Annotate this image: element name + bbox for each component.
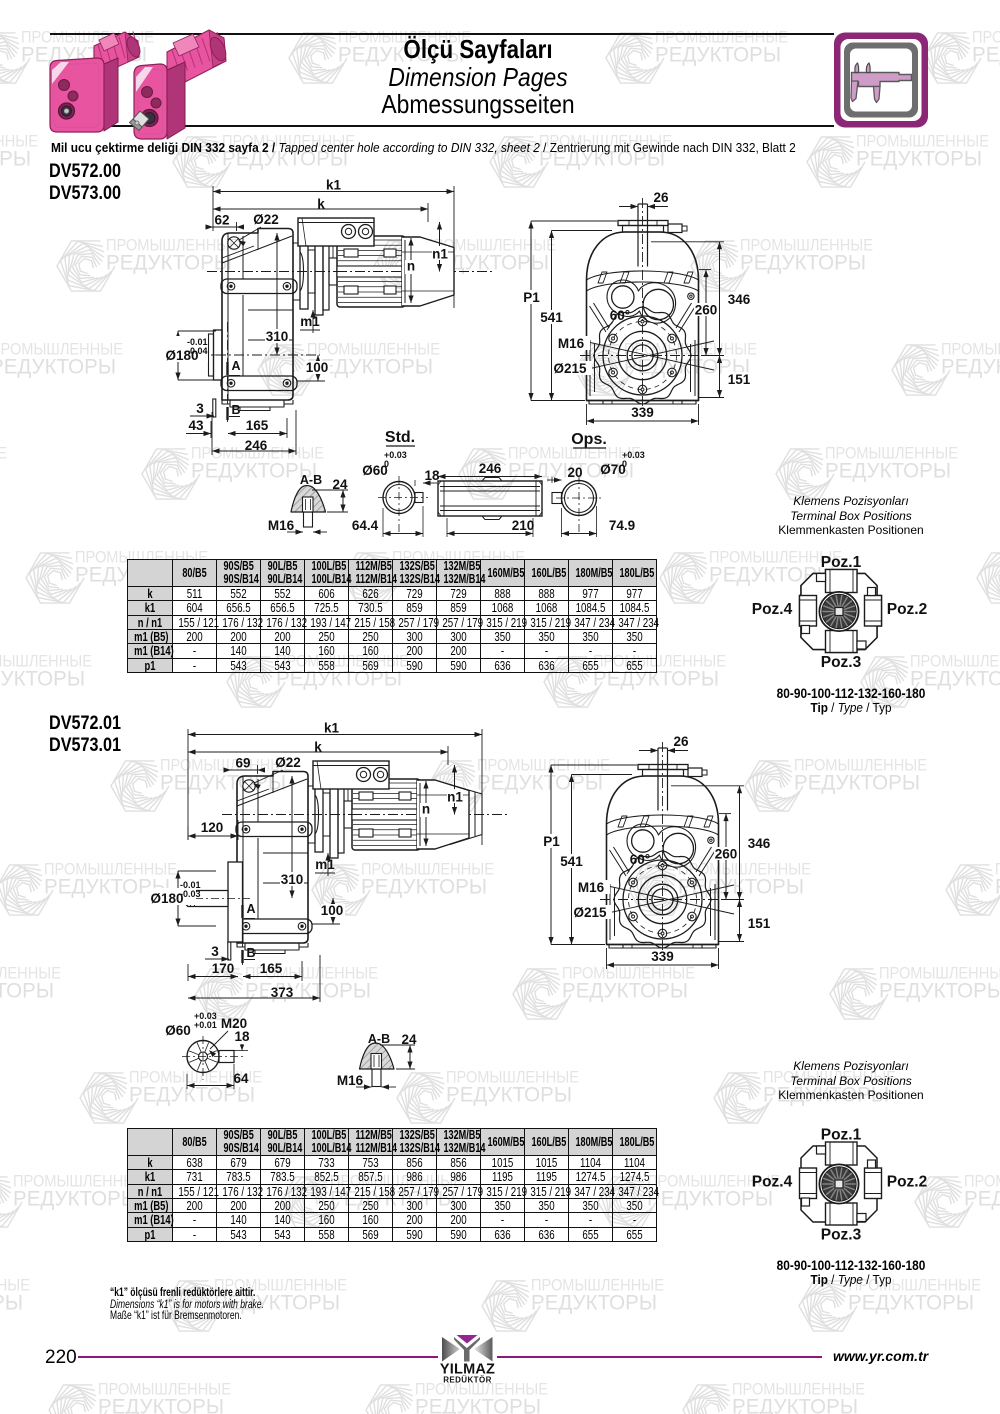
svg-text:Std.: Std. (385, 429, 415, 446)
svg-text:310: 310 (281, 872, 304, 887)
svg-text:151: 151 (748, 916, 771, 931)
svg-text:Poz.1: Poz.1 (821, 1127, 862, 1144)
svg-text:Ø215: Ø215 (573, 905, 607, 920)
svg-text:60°: 60° (630, 852, 650, 867)
svg-text:M16: M16 (268, 518, 295, 533)
svg-text:346: 346 (748, 836, 771, 851)
svg-text:P1: P1 (523, 290, 540, 305)
svg-text:3: 3 (196, 401, 204, 416)
svg-text:3: 3 (211, 944, 219, 959)
svg-text:B: B (231, 403, 240, 417)
svg-text:Poz.1: Poz.1 (821, 554, 862, 571)
svg-text:A: A (246, 902, 255, 916)
svg-text:k1: k1 (326, 178, 342, 193)
svg-text:100: 100 (321, 903, 344, 918)
svg-text:373: 373 (271, 985, 294, 1000)
svg-text:Ø180: Ø180 (150, 891, 183, 906)
svg-text:151: 151 (728, 372, 751, 387)
svg-text:20: 20 (567, 465, 582, 480)
svg-text:+0.01: +0.01 (194, 1020, 217, 1030)
svg-text:165: 165 (260, 961, 283, 976)
svg-text:246: 246 (245, 438, 268, 453)
svg-text:B: B (246, 946, 255, 960)
svg-text:Ops.: Ops. (571, 431, 607, 448)
svg-text:260: 260 (715, 847, 738, 862)
svg-text:541: 541 (560, 854, 583, 869)
svg-text:Poz.4: Poz.4 (752, 601, 793, 618)
svg-text:Poz.2: Poz.2 (887, 1174, 927, 1191)
svg-text:Poz.3: Poz.3 (821, 1227, 862, 1244)
svg-text:k1: k1 (324, 721, 340, 736)
svg-text:m1: m1 (315, 857, 335, 872)
svg-text:339: 339 (631, 405, 654, 420)
svg-text:64.4: 64.4 (352, 518, 379, 533)
svg-text:Ø22: Ø22 (253, 212, 279, 227)
svg-text:Poz.2: Poz.2 (887, 601, 927, 618)
svg-text:62: 62 (214, 213, 229, 228)
svg-text:69: 69 (235, 756, 250, 771)
svg-text:M16: M16 (337, 1073, 364, 1088)
svg-text:541: 541 (540, 310, 563, 325)
svg-text:n: n (422, 802, 430, 817)
svg-text:346: 346 (728, 292, 751, 307)
svg-text:k: k (314, 740, 322, 755)
svg-text:339: 339 (651, 949, 674, 964)
svg-text:64: 64 (233, 1071, 249, 1086)
svg-text:Ø60: Ø60 (165, 1023, 191, 1038)
svg-text:n1: n1 (447, 790, 463, 805)
svg-text:165: 165 (246, 418, 269, 433)
svg-text:k: k (317, 197, 325, 212)
svg-text:0: 0 (622, 459, 627, 469)
svg-text:310: 310 (266, 329, 289, 344)
svg-text:M16: M16 (578, 880, 605, 895)
svg-text:n: n (407, 259, 415, 274)
svg-text:Poz.3: Poz.3 (821, 654, 862, 671)
svg-text:-0.04: -0.04 (187, 346, 208, 356)
svg-text:43: 43 (188, 418, 204, 433)
svg-text:120: 120 (201, 820, 224, 835)
svg-text:26: 26 (653, 190, 669, 205)
svg-text:A-B: A-B (300, 473, 322, 487)
svg-text:18: 18 (234, 1029, 250, 1044)
svg-text:74.9: 74.9 (609, 518, 635, 533)
svg-text:170: 170 (212, 961, 235, 976)
svg-text:100: 100 (306, 360, 329, 375)
svg-text:A-B: A-B (368, 1032, 390, 1046)
svg-text:P1: P1 (543, 834, 560, 849)
svg-text:26: 26 (673, 734, 689, 749)
svg-text:260: 260 (695, 303, 718, 318)
svg-text:n1: n1 (432, 247, 448, 262)
svg-text:m1: m1 (300, 314, 320, 329)
svg-text:Poz.4: Poz.4 (752, 1174, 793, 1191)
svg-text:-0.03: -0.03 (180, 889, 201, 899)
svg-text:M16: M16 (558, 336, 585, 351)
svg-text:REDÜKTÖR: REDÜKTÖR (443, 1376, 492, 1385)
svg-text:A: A (231, 359, 240, 373)
svg-text:60°: 60° (610, 308, 630, 323)
svg-text:Ø22: Ø22 (275, 755, 301, 770)
svg-text:0: 0 (384, 459, 389, 469)
svg-text:246: 246 (479, 461, 502, 476)
svg-text:210: 210 (512, 518, 535, 533)
svg-text:Ø215: Ø215 (553, 361, 587, 376)
